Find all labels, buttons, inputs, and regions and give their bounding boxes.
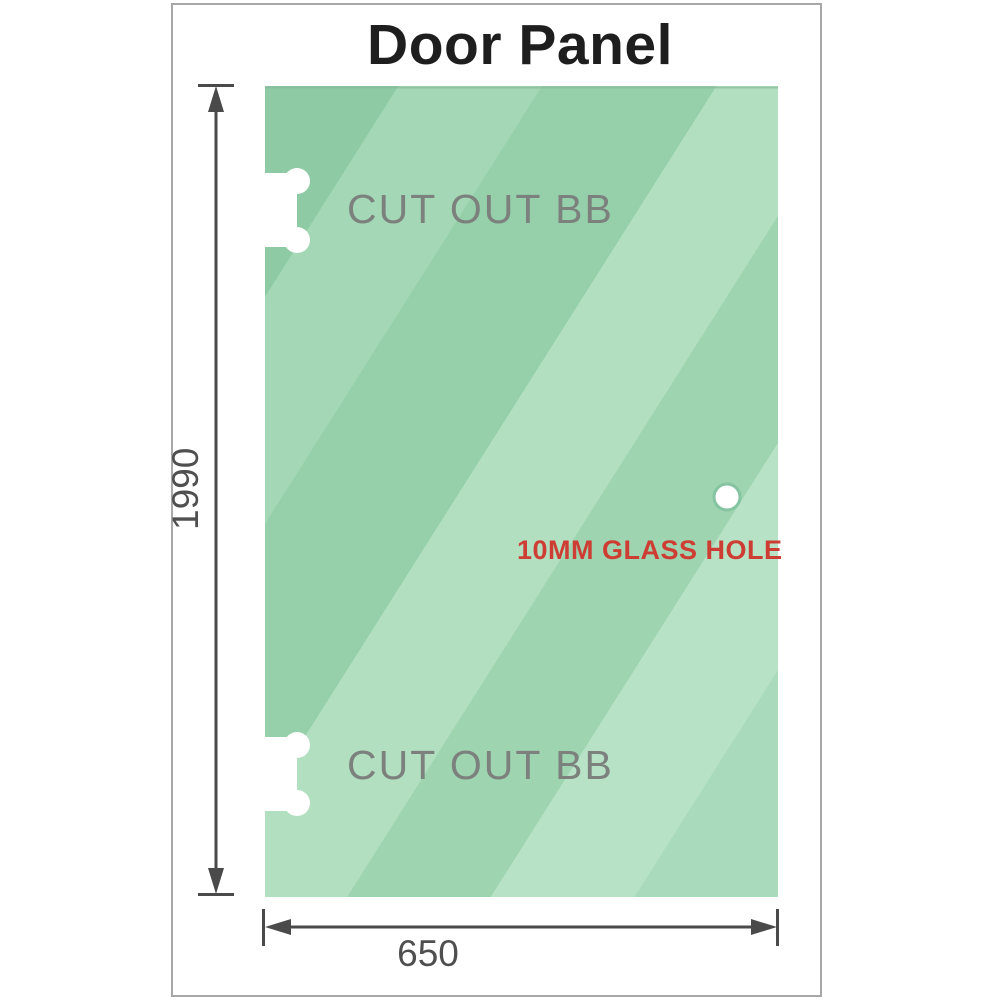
width-dimension-value: 650 xyxy=(378,933,478,975)
cutout-label-top: CUT OUT BB xyxy=(347,186,614,233)
cutout-label-bottom: CUT OUT BB xyxy=(347,742,614,789)
width-dimension-line xyxy=(264,909,778,946)
height-dimension-value: 1990 xyxy=(166,450,206,530)
door-panel-diagram xyxy=(0,0,1000,1000)
glass-hole xyxy=(714,484,740,510)
page-title: Door Panel xyxy=(190,12,850,78)
glass-hole-label: 10MM GLASS HOLE xyxy=(517,535,783,566)
